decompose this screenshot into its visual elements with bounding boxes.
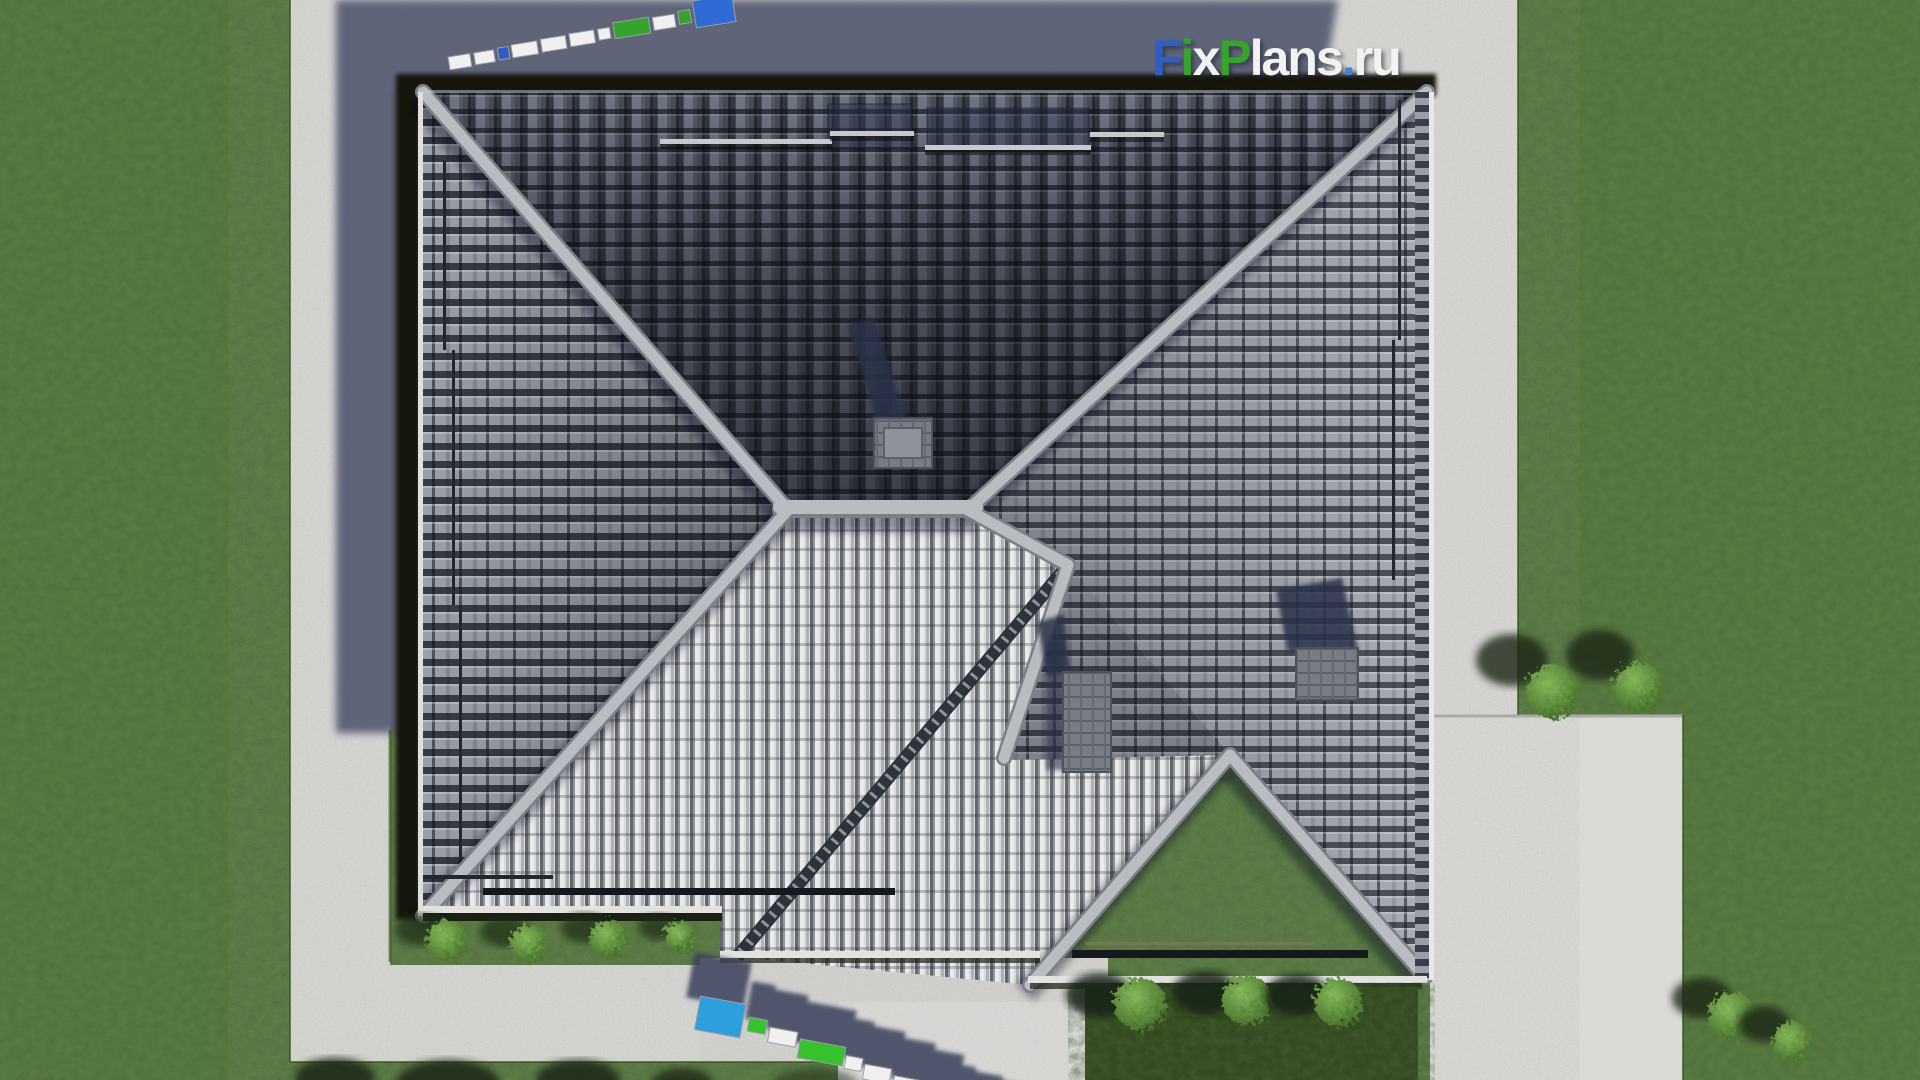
chimney-a-cap [884,428,922,458]
brand-logo-text: FixPlans.ru [1152,30,1400,86]
roof-vents [828,104,1089,152]
scene-canvas: FixPlans.ru FixPlans.ru [0,0,1920,1080]
chimney-b-cap [1063,672,1111,772]
aerial-render: FixPlans.ru FixPlans.ru [0,0,1920,1080]
brand-logo: FixPlans.ru FixPlans.ru [1152,30,1403,89]
chimney-c-cap [1296,648,1358,700]
